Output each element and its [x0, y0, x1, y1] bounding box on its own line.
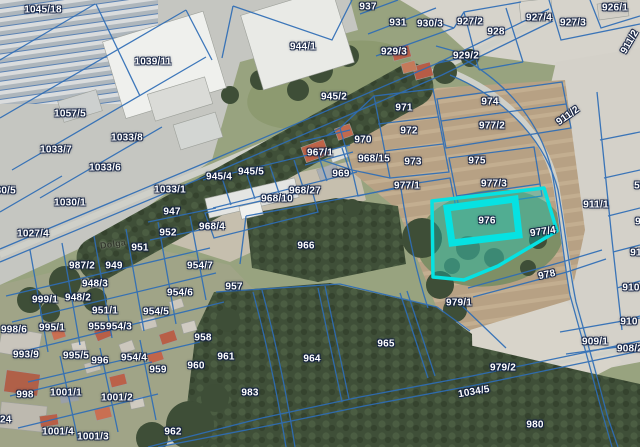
parcel-number-label: 1001/1 — [50, 388, 82, 399]
parcel-number-label: 1057/5 — [54, 109, 86, 120]
parcel-number-label: 980 — [526, 420, 543, 431]
parcel-number-label: 972 — [400, 126, 417, 137]
parcel-number-label: 910 — [620, 317, 637, 328]
parcel-number-label: 911/1 — [583, 200, 608, 211]
parcel-number-label: 977/4 — [529, 225, 556, 240]
parcel-number-label: 91 — [630, 248, 640, 259]
parcel-number-label: 979/2 — [490, 363, 516, 374]
parcel-number-label: 957 — [225, 282, 242, 293]
parcel-number-label: 978 — [537, 268, 556, 282]
parcel-number-label: 929/2 — [453, 51, 479, 62]
parcel-number-label: 975 — [468, 156, 485, 167]
parcel-number-label: 954/7 — [187, 261, 213, 272]
parcel-number-label: 954/4 — [121, 353, 147, 364]
parcel-number-label: 949 — [105, 261, 122, 272]
parcel-number-label: 1033/6 — [89, 163, 121, 174]
parcel-number-label: 908/2 — [617, 344, 640, 355]
parcel-number-label: 1039/11 — [135, 57, 172, 68]
parcel-number-label: 955 — [88, 322, 105, 333]
parcel-number-label: 954/3 — [106, 322, 132, 333]
parcel-number-label: 9 — [635, 217, 640, 228]
parcel-number-label: 1034/5 — [457, 384, 490, 400]
parcel-number-label: 965 — [377, 339, 394, 350]
parcel-number-label: 962 — [164, 427, 181, 438]
parcel-number-label: 945/2 — [321, 92, 347, 103]
parcel-number-label: 1033/8 — [111, 133, 143, 144]
parcel-number-label: 929/3 — [381, 47, 407, 58]
parcel-number-label: 966 — [297, 241, 314, 252]
parcel-number-label: 927/4 — [526, 13, 552, 24]
parcel-number-label: 926/1 — [602, 3, 628, 14]
parcel-number-label: 998 — [16, 390, 33, 401]
parcel-number-label: 930/3 — [417, 19, 443, 30]
parcel-number-label: 1024 — [0, 415, 12, 426]
parcel-number-label: 996 — [91, 356, 108, 367]
parcel-number-label: 911/2 — [619, 28, 640, 56]
parcel-number-label: 5 — [634, 181, 640, 192]
parcel-number-label: 1033/7 — [40, 145, 72, 156]
parcel-number-label: 1001/4 — [42, 427, 74, 438]
parcel-number-label: 927/3 — [560, 18, 586, 29]
parcel-number-label: 959 — [149, 365, 166, 376]
parcel-number-label: 960 — [187, 361, 204, 372]
parcel-number-label: 947 — [163, 207, 180, 218]
parcel-number-label: 948/2 — [65, 293, 91, 304]
parcel-number-label: 928 — [487, 27, 504, 38]
parcel-number-label: 995/1 — [39, 323, 65, 334]
parcel-number-label: 1030/1 — [54, 198, 86, 209]
parcel-number-label: 968/10 — [261, 194, 293, 205]
parcel-number-label: 910 — [622, 283, 639, 294]
parcel-number-label: 968/27 — [289, 186, 321, 197]
parcel-number-label: 998/6 — [1, 325, 27, 336]
parcel-number-label: 968/15 — [358, 154, 390, 165]
parcel-labels-layer: 1045/181039/111057/51033/81033/71033/610… — [0, 0, 640, 447]
parcel-number-label: 987/2 — [69, 261, 95, 272]
parcel-number-label: 977/1 — [394, 181, 420, 192]
parcel-number-label: 1033/1 — [154, 185, 186, 196]
parcel-number-label: 944/1 — [290, 42, 316, 53]
parcel-number-label: 954/5 — [143, 307, 169, 318]
parcel-number-label: 952 — [159, 228, 176, 239]
parcel-number-label: 973 — [404, 157, 421, 168]
parcel-number-label: 927/2 — [457, 17, 483, 28]
parcel-number-label: 954/6 — [167, 288, 193, 299]
parcel-number-label: 1027/4 — [17, 229, 49, 240]
parcel-number-label: 983 — [241, 388, 258, 399]
parcel-number-label: 995/5 — [63, 351, 89, 362]
parcel-number-label: 970 — [354, 135, 371, 146]
parcel-number-label: 961 — [217, 352, 234, 363]
parcel-number-label: 979/1 — [446, 298, 472, 309]
parcel-number-label: 968/4 — [199, 222, 225, 233]
parcel-number-label: 999/1 — [32, 295, 58, 306]
parcel-number-label: 951 — [131, 243, 148, 254]
parcel-number-label: 911/2 — [554, 104, 581, 128]
parcel-number-label: 948/3 — [82, 279, 108, 290]
parcel-number-label: 977/2 — [479, 121, 505, 132]
parcel-number-label: 1030/5 — [0, 186, 16, 197]
parcel-number-label: 937 — [359, 2, 376, 13]
parcel-number-label: 1001/3 — [77, 432, 109, 443]
parcel-number-label: 1045/18 — [24, 5, 62, 16]
parcel-number-label: 945/5 — [238, 167, 264, 178]
cadastral-map-viewport[interactable]: 1045/181039/111057/51033/81033/71033/610… — [0, 0, 640, 447]
parcel-number-label: 931 — [389, 18, 406, 29]
parcel-number-label: 977/3 — [481, 179, 507, 190]
parcel-number-label: 993/9 — [13, 350, 39, 361]
parcel-number-label: 951/1 — [92, 306, 118, 317]
parcel-number-label: 964 — [303, 354, 320, 365]
parcel-number-label: 971 — [395, 103, 412, 114]
parcel-number-label: 1001/2 — [101, 393, 133, 404]
street-label: Dolga — [99, 237, 126, 251]
parcel-number-label: 967/1 — [307, 148, 333, 159]
parcel-number-label: 974 — [481, 97, 498, 108]
parcel-number-label: 909/1 — [582, 337, 608, 348]
parcel-number-label: 976 — [478, 216, 495, 227]
parcel-number-label: 958 — [194, 333, 211, 344]
parcel-number-label: 969 — [332, 169, 349, 180]
parcel-number-label: 945/4 — [206, 172, 232, 183]
